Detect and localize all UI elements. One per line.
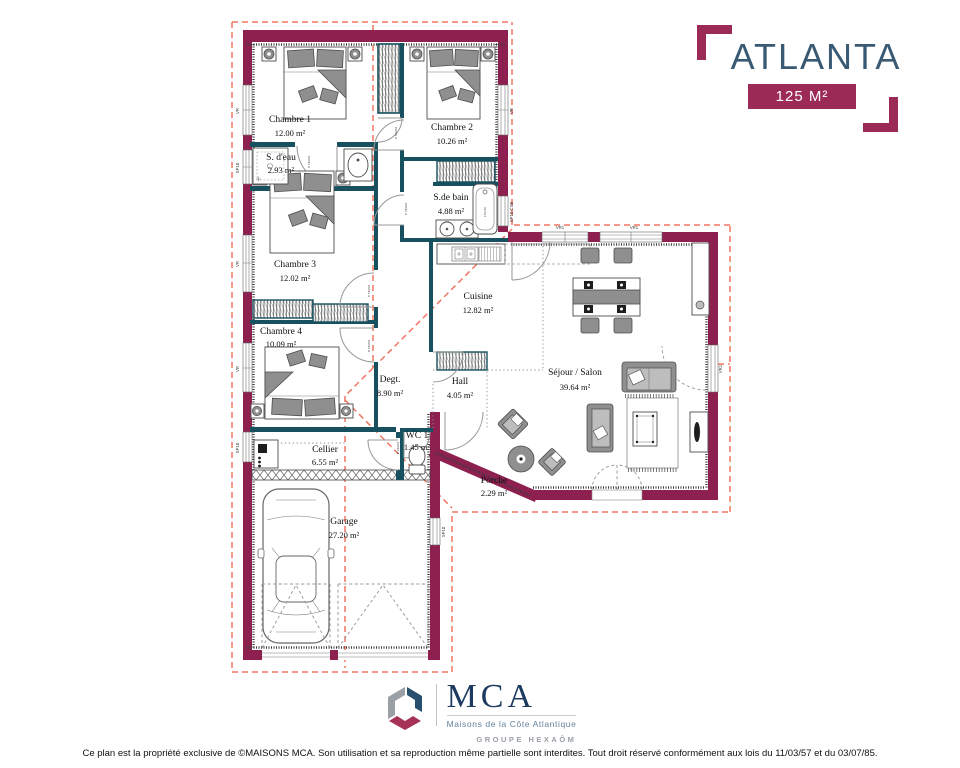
door-label: P 73/204 xyxy=(307,156,311,169)
window-label: VR xyxy=(509,108,514,114)
title-block: ATLANTA 125 M² xyxy=(690,18,910,118)
room-area: 4.05 m² xyxy=(447,390,474,400)
footer-logo-block: MCA Maisons de la Côte Atlantique GROUPE… xyxy=(0,682,960,744)
furniture-rug-coffee-table xyxy=(627,398,678,470)
room-area: 39.64 m² xyxy=(560,382,591,392)
door-label: P 73/204 xyxy=(367,340,371,353)
room-name: Chambre 4 xyxy=(260,327,302,337)
room-name: Cuisine xyxy=(463,292,492,302)
garage-door-openings xyxy=(262,650,428,660)
furniture-tv-unit xyxy=(690,412,708,452)
window-vr-chambre3: VR xyxy=(235,235,252,292)
closet-chambre3-left xyxy=(253,300,313,318)
room-name: Cellier xyxy=(312,445,339,455)
furniture-armchair-1 xyxy=(497,408,528,439)
window-label: SP10 xyxy=(441,526,446,537)
window-label: VR1 xyxy=(718,364,723,373)
closet-chambre2 xyxy=(437,161,495,182)
window-vr-chambre4: VR xyxy=(235,343,252,392)
model-title: ATLANTA xyxy=(726,36,906,78)
door-label: P 73/204 xyxy=(396,442,400,455)
room-area: 10.09 m² xyxy=(266,339,297,349)
window-label: SP10 CSB xyxy=(509,202,514,223)
furniture-kitchen xyxy=(437,244,590,264)
window-label: VR xyxy=(235,261,240,267)
room-name: Degt. xyxy=(380,375,401,385)
window-label: VR xyxy=(235,366,240,372)
window-vr-chambre1: VR xyxy=(235,85,252,135)
brand-wordmark: MCA xyxy=(447,682,577,712)
room-area: 12.02 m² xyxy=(280,273,311,283)
furniture-armchair-2 xyxy=(538,448,566,476)
group-label: GROUPE HEXAÔM xyxy=(447,735,577,744)
room-name: Porche xyxy=(481,476,507,486)
furniture-car xyxy=(258,489,334,643)
door-label: P 73/204 xyxy=(404,203,408,216)
window-vr1-sejour-top-1: VR1 xyxy=(542,225,588,242)
room-name: WC 1 xyxy=(406,431,429,441)
window-sp10-cellier: SP10 xyxy=(235,432,252,462)
window-label: VR1 xyxy=(556,225,565,230)
window-label: SP10 xyxy=(235,442,240,453)
room-name: Séjour / Salon xyxy=(548,368,602,378)
room-name: Garage xyxy=(330,517,357,527)
furniture-cabinet-column xyxy=(692,243,709,315)
room-area: 12.82 m² xyxy=(463,305,494,315)
open-plan-dotted-lines xyxy=(433,246,543,430)
room-area: 4.88 m² xyxy=(438,206,465,216)
window-vr1-sejour-top-2: VR1 xyxy=(600,225,662,242)
room-area: 2.93 m² xyxy=(268,165,295,175)
floor-plan-page: VR SP10 VR VR SP10 xyxy=(0,0,960,768)
window-sp10-sdeau: SP10 xyxy=(235,150,252,184)
logo-divider xyxy=(436,684,437,726)
furniture-round-table xyxy=(508,446,534,472)
room-area: 6.55 m² xyxy=(312,457,339,467)
room-name: S. d'eau xyxy=(266,153,296,163)
door-label: P 73/204 xyxy=(367,285,371,298)
room-name: Chambre 2 xyxy=(431,123,473,133)
copyright-notice: Ce plan est la propriété exclusive de ©M… xyxy=(0,748,960,759)
furniture-sofa-large xyxy=(622,362,676,396)
room-area: 27.20 m² xyxy=(329,530,360,540)
furniture-dining-table xyxy=(573,248,640,333)
room-name: Hall xyxy=(452,377,469,387)
bathtub-size-label: 170x70 xyxy=(483,207,487,217)
room-name: Chambre 3 xyxy=(274,260,316,270)
furniture-chambre2 xyxy=(410,47,495,119)
room-area: 10.26 m² xyxy=(437,136,468,146)
room-area: 2.29 m² xyxy=(481,488,508,498)
brand-tagline: Maisons de la Côte Atlantique xyxy=(447,715,577,729)
mca-cube-icon xyxy=(384,684,426,732)
entry-double-door xyxy=(592,465,642,500)
closet-corridor xyxy=(378,44,400,113)
room-area: 8.90 m² xyxy=(377,388,404,398)
furniture-chambre4 xyxy=(251,347,353,419)
room-name: S.de bain xyxy=(433,193,469,203)
room-area: 1.45 m² xyxy=(404,442,431,452)
window-label: VR xyxy=(235,108,240,114)
area-badge: 125 M² xyxy=(748,84,856,109)
bracket-bottom-right xyxy=(863,97,898,132)
furniture-chambre1 xyxy=(262,47,362,119)
door-label: P 73/204 xyxy=(394,127,398,140)
furniture-sofa-small xyxy=(587,404,613,452)
window-label: VR1 xyxy=(630,225,639,230)
room-area: 12.00 m² xyxy=(275,128,306,138)
window-sp10-garage: SP10 xyxy=(430,518,446,545)
room-name: Chambre 1 xyxy=(269,115,311,125)
window-label: SP10 xyxy=(235,162,240,173)
